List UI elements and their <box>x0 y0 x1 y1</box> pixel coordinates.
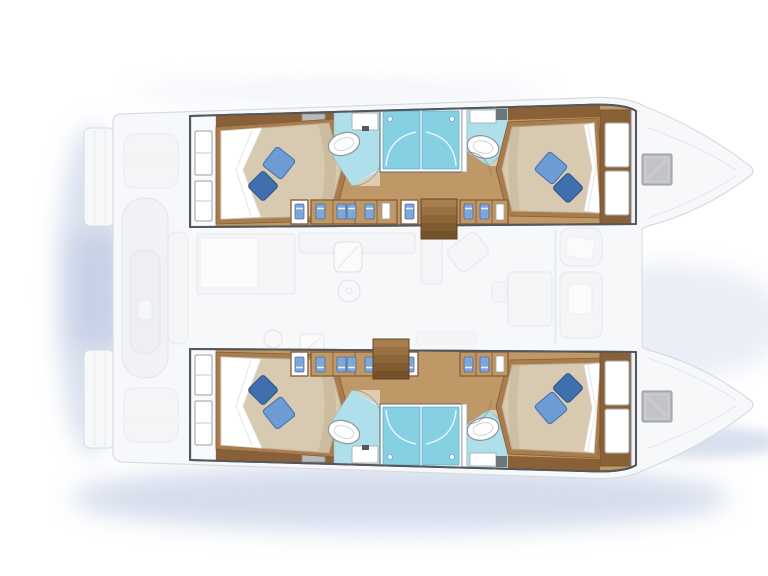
tender-davit-bay <box>122 198 168 378</box>
forward-cabin <box>496 104 637 225</box>
mirror-cabinet <box>496 109 507 120</box>
locker-item-icon <box>405 204 414 219</box>
locker-item-icon <box>480 204 489 219</box>
headboard-panel <box>605 171 629 215</box>
locker-item-icon <box>337 204 346 219</box>
swim-platform-port <box>84 128 114 226</box>
galley-unit <box>200 238 258 288</box>
locker-item-icon <box>464 204 473 219</box>
shower-head <box>387 116 392 121</box>
saloon-front-wall <box>554 230 557 344</box>
vanity-cabinet <box>470 110 496 123</box>
locker-item-icon <box>365 204 374 219</box>
locker-item-icon <box>347 204 356 219</box>
shower-stalls <box>380 108 462 172</box>
faucet <box>362 126 369 131</box>
headboard-panel <box>605 123 629 167</box>
companionway-stairs-port <box>421 199 457 239</box>
swim-platform-starboard <box>84 350 114 448</box>
catamaran-floorplan <box>0 0 768 576</box>
galley-sink <box>338 280 360 302</box>
shower-head <box>449 116 454 121</box>
saloon-table <box>508 272 552 326</box>
companionway-stairs-starboard <box>373 339 409 379</box>
locker-item-icon <box>316 204 325 219</box>
locker-item-icon <box>295 204 304 219</box>
